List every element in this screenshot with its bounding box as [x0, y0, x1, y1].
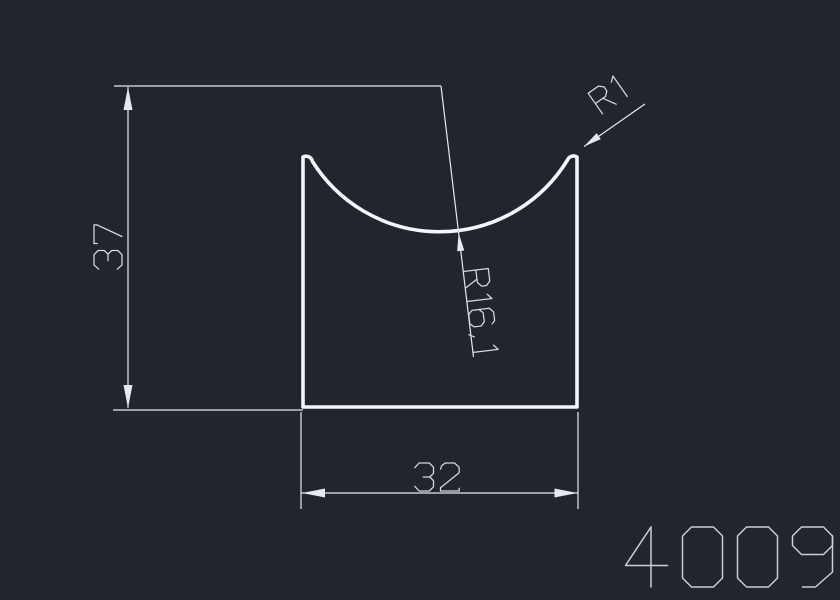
cad-drawing-stage [0, 0, 840, 600]
groove-radius-label [461, 269, 498, 353]
height-dimension-label [94, 225, 122, 269]
fillet-radius-label [588, 76, 627, 114]
part-number-text [626, 527, 833, 587]
width-dimension-label [415, 463, 459, 491]
dimension-lines-layer [113, 86, 645, 509]
technical-drawing-canvas [0, 0, 840, 600]
profile-outline [303, 156, 577, 407]
